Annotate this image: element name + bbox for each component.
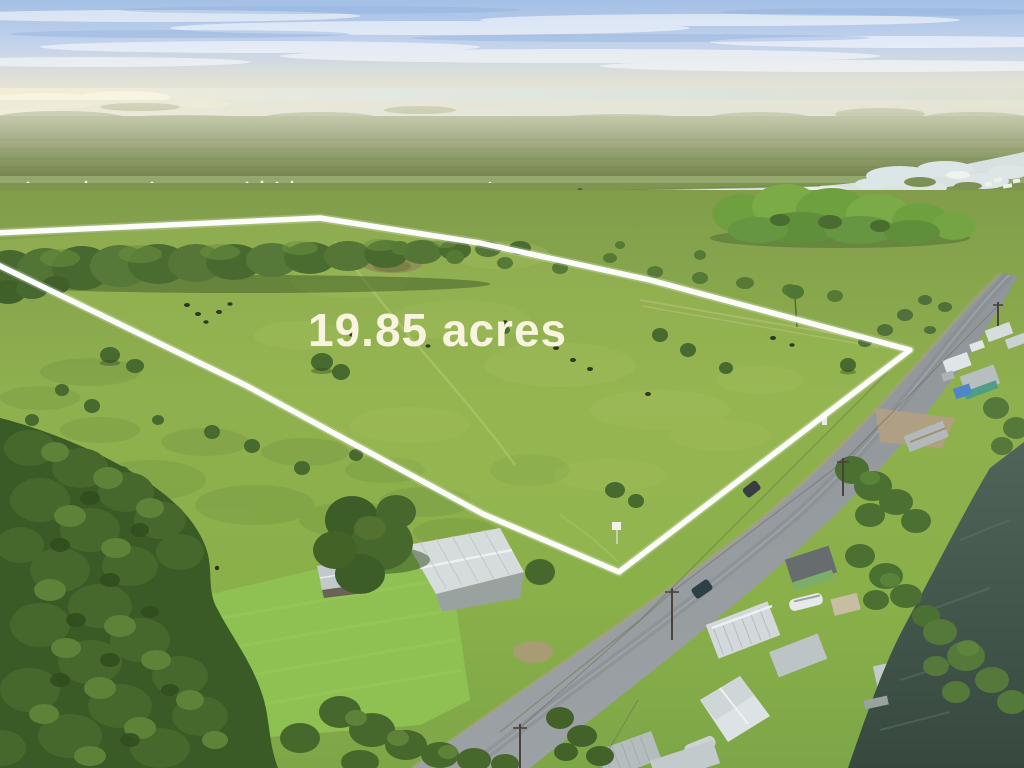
sky xyxy=(0,0,1024,100)
aerial-photo-canvas xyxy=(0,0,1024,768)
yard-tree xyxy=(525,559,555,585)
fence-post xyxy=(215,566,219,570)
dirt-apron xyxy=(513,641,553,663)
aerial-photo: 19.85 acres xyxy=(0,0,1024,768)
tall-palm xyxy=(786,285,804,299)
atmospheric-haze xyxy=(0,100,1024,180)
acreage-label: 19.85 acres xyxy=(308,307,567,353)
